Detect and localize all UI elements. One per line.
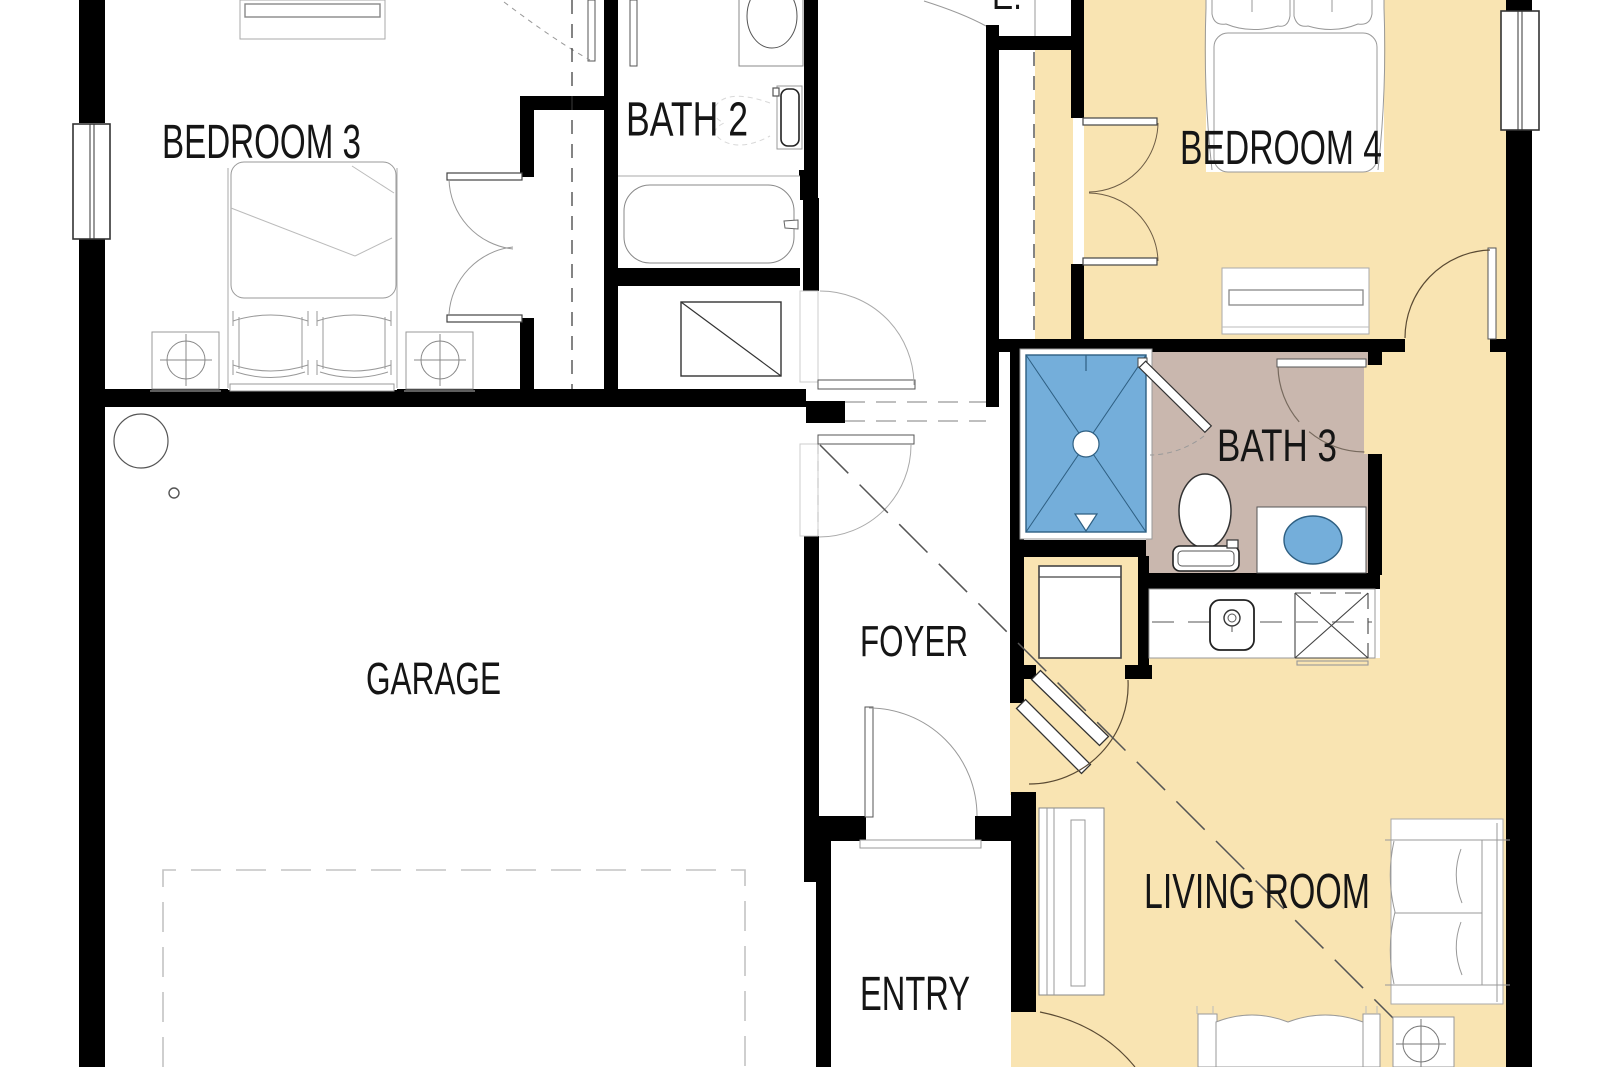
svg-text:FOYER: FOYER (860, 617, 968, 666)
svg-text:BATH 2: BATH 2 (626, 94, 748, 147)
svg-text:BEDROOM 3: BEDROOM 3 (162, 115, 361, 169)
svg-text:GARAGE: GARAGE (366, 653, 501, 704)
svg-text:BEDROOM 4: BEDROOM 4 (1180, 122, 1382, 175)
svg-text:E.: E. (992, 0, 1022, 18)
svg-text:BATH 3: BATH 3 (1217, 420, 1337, 471)
svg-text:LIVING ROOM: LIVING ROOM (1144, 864, 1370, 919)
svg-text:ENTRY: ENTRY (860, 968, 970, 1021)
